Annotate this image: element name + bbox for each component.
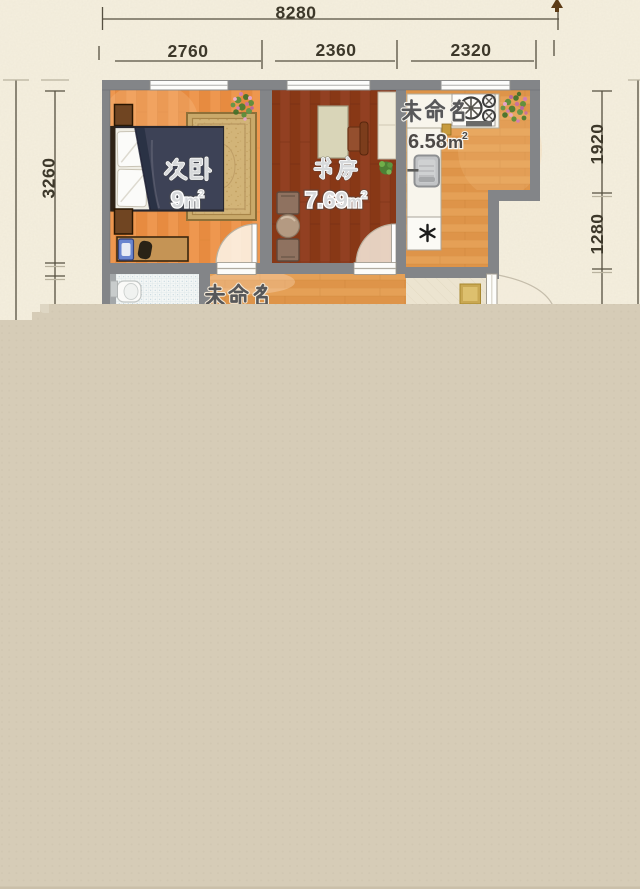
svg-text:2: 2 bbox=[198, 189, 204, 201]
svg-text:2360: 2360 bbox=[316, 40, 357, 60]
svg-text:m: m bbox=[448, 133, 463, 152]
svg-text:m: m bbox=[347, 193, 362, 212]
svg-text:2320: 2320 bbox=[451, 40, 492, 60]
svg-text:7.69: 7.69 bbox=[305, 188, 348, 213]
svg-text:2: 2 bbox=[462, 130, 468, 142]
svg-text:1280: 1280 bbox=[587, 214, 607, 255]
svg-text:9: 9 bbox=[171, 187, 184, 213]
svg-text:2760: 2760 bbox=[168, 41, 209, 61]
svg-text:1920: 1920 bbox=[587, 124, 607, 165]
svg-text:8280: 8280 bbox=[276, 2, 317, 22]
svg-text:2: 2 bbox=[361, 190, 367, 202]
svg-text:6.58: 6.58 bbox=[408, 131, 447, 153]
svg-text:3260: 3260 bbox=[39, 158, 59, 199]
